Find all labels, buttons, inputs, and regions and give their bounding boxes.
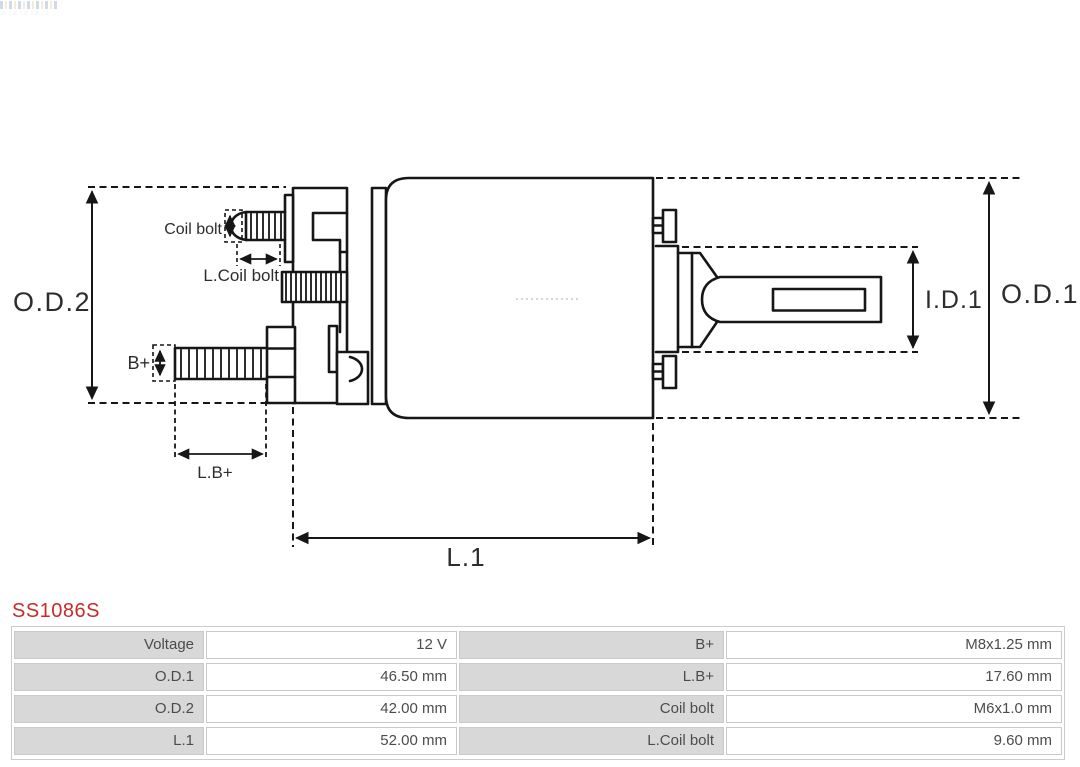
solenoid-technical-drawing: O.D.2 O.D.1 I.D.1 L.1 L.B+ B+ Coil bolt … [0,0,1080,592]
dim-label-coil-bolt: Coil bolt [164,221,222,238]
spec-value-cell: 52.00 mm [206,727,457,755]
plate-front-strip [285,195,293,262]
spec-row-4: L.1 52.00 mm L.Coil bolt 9.60 mm [14,727,1062,755]
spec-value-cell: M6x1.0 mm [726,695,1062,723]
terminal-top [663,210,676,242]
part-number-heading: SS1086S [12,600,100,623]
dim-label-l1: L.1 [446,542,485,572]
spec-label-cell: O.D.1 [14,663,204,691]
rear-step-bottom [656,347,678,352]
spec-row-1: Voltage 12 V B+ M8x1.25 mm [14,631,1062,659]
spec-value-cell: 42.00 mm [206,695,457,723]
front-disc [372,188,386,404]
spec-label-cell: O.D.2 [14,695,204,723]
bracket [337,352,368,404]
spec-label-cell: B+ [459,631,724,659]
spec-table: Voltage 12 V B+ M8x1.25 mm O.D.1 46.50 m… [11,626,1065,760]
b-plus-nut [267,327,295,403]
spec-value-cell: 46.50 mm [206,663,457,691]
dim-label-od2: O.D.2 [13,287,91,317]
dim-label-id1: I.D.1 [925,286,983,314]
b-plus-threads [181,350,261,378]
coil-bolt-threads [251,214,281,239]
spec-label-cell: Voltage [14,631,204,659]
spec-row-2: O.D.1 46.50 mm L.B+ 17.60 mm [14,663,1062,691]
spec-label-cell: L.1 [14,727,204,755]
dim-label-lb-plus: L.B+ [197,463,233,482]
spec-row-3: O.D.2 42.00 mm Coil bolt M6x1.0 mm [14,695,1062,723]
dim-label-b-plus: B+ [127,353,150,373]
spec-value-cell: 9.60 mm [726,727,1062,755]
spec-value-cell: M8x1.25 mm [726,631,1062,659]
spec-label-cell: L.Coil bolt [459,727,724,755]
spec-label-cell: L.B+ [459,663,724,691]
solenoid-body [386,178,653,418]
coil-bolt-head [231,212,246,240]
spec-label-cell: Coil bolt [459,695,724,723]
spec-value-cell: 12 V [206,631,457,659]
solenoid-outline [175,178,881,418]
product-diagram-page: O.D.2 O.D.1 I.D.1 L.1 L.B+ B+ Coil bolt … [0,0,1080,767]
spec-value-cell: 17.60 mm [726,663,1062,691]
terminal-bottom [663,356,676,388]
dim-label-l-coil-bolt: L.Coil bolt [203,266,279,285]
dim-label-od1: O.D.1 [1001,279,1079,309]
plunger-slot [773,289,865,311]
rear-step-top [656,246,678,253]
